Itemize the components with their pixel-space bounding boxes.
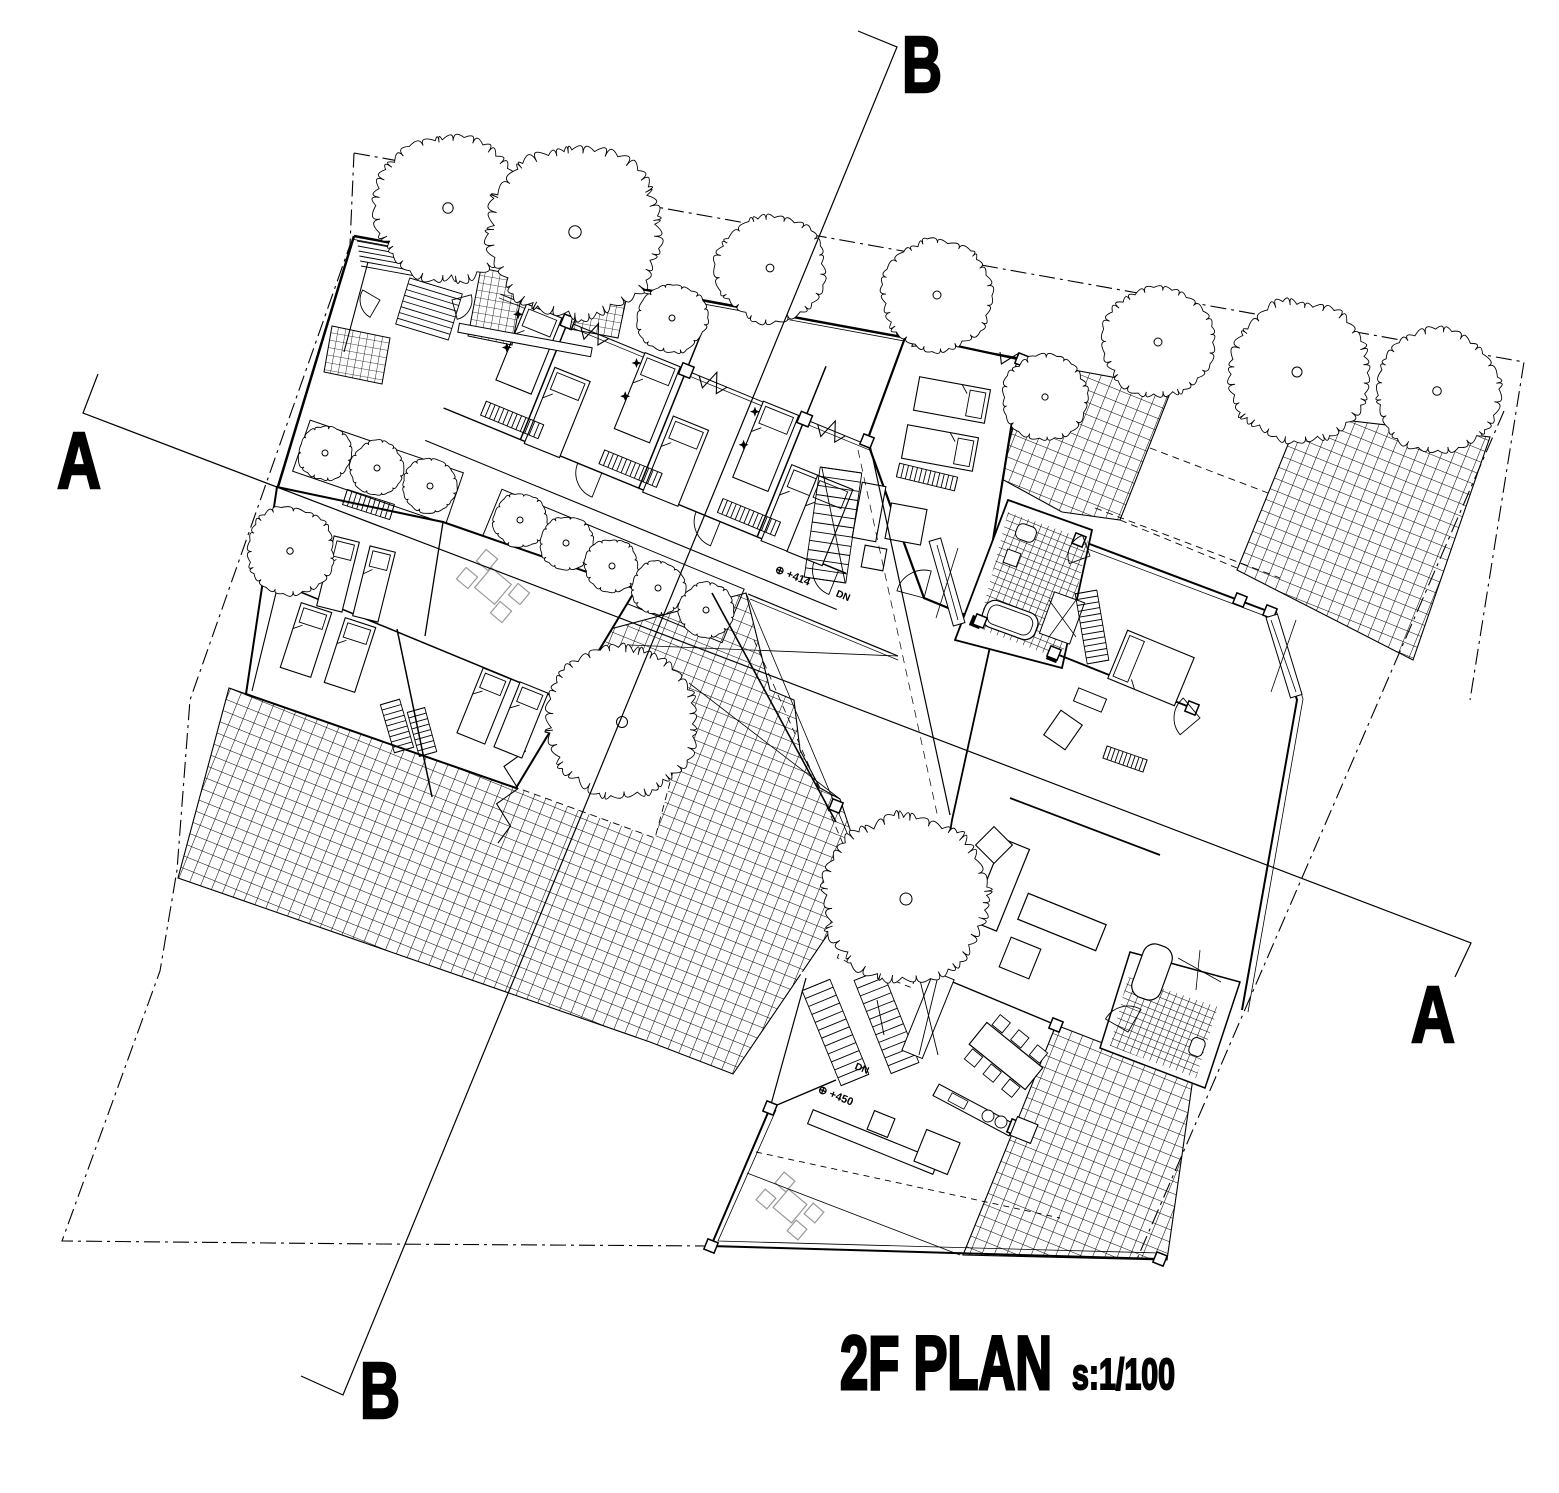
svg-text:s:1/100: s:1/100	[1072, 1350, 1175, 1399]
svg-text:2F PLAN: 2F PLAN	[840, 1321, 1052, 1406]
svg-text:A: A	[1411, 970, 1455, 1059]
svg-text:B: B	[360, 1346, 400, 1435]
svg-text:B: B	[902, 20, 942, 109]
svg-text:A: A	[57, 416, 101, 505]
